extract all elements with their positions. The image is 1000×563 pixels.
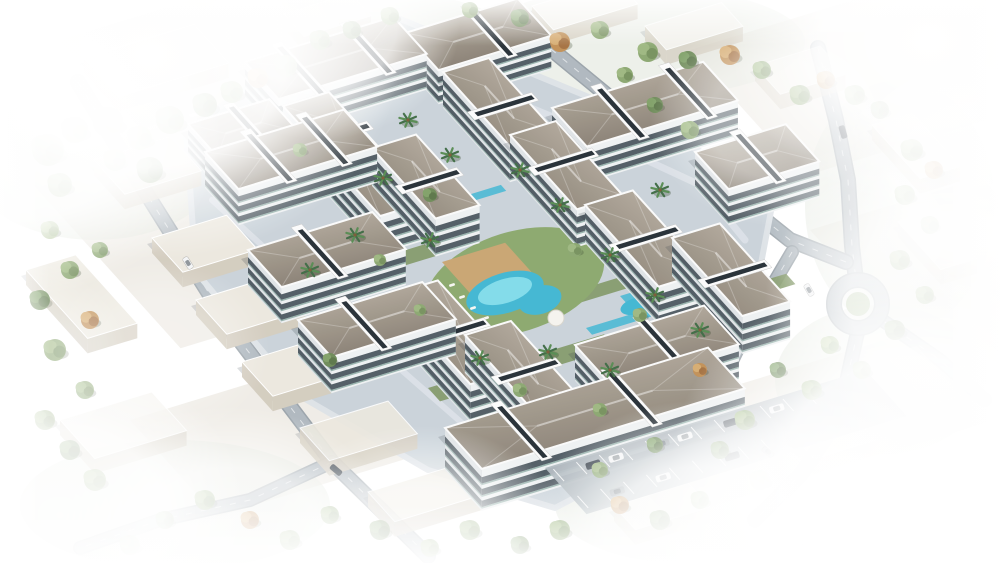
haze-wash	[0, 0, 1000, 563]
scene-canvas	[0, 0, 1000, 563]
fog-layer	[0, 0, 1000, 563]
aerial-render	[0, 0, 1000, 563]
